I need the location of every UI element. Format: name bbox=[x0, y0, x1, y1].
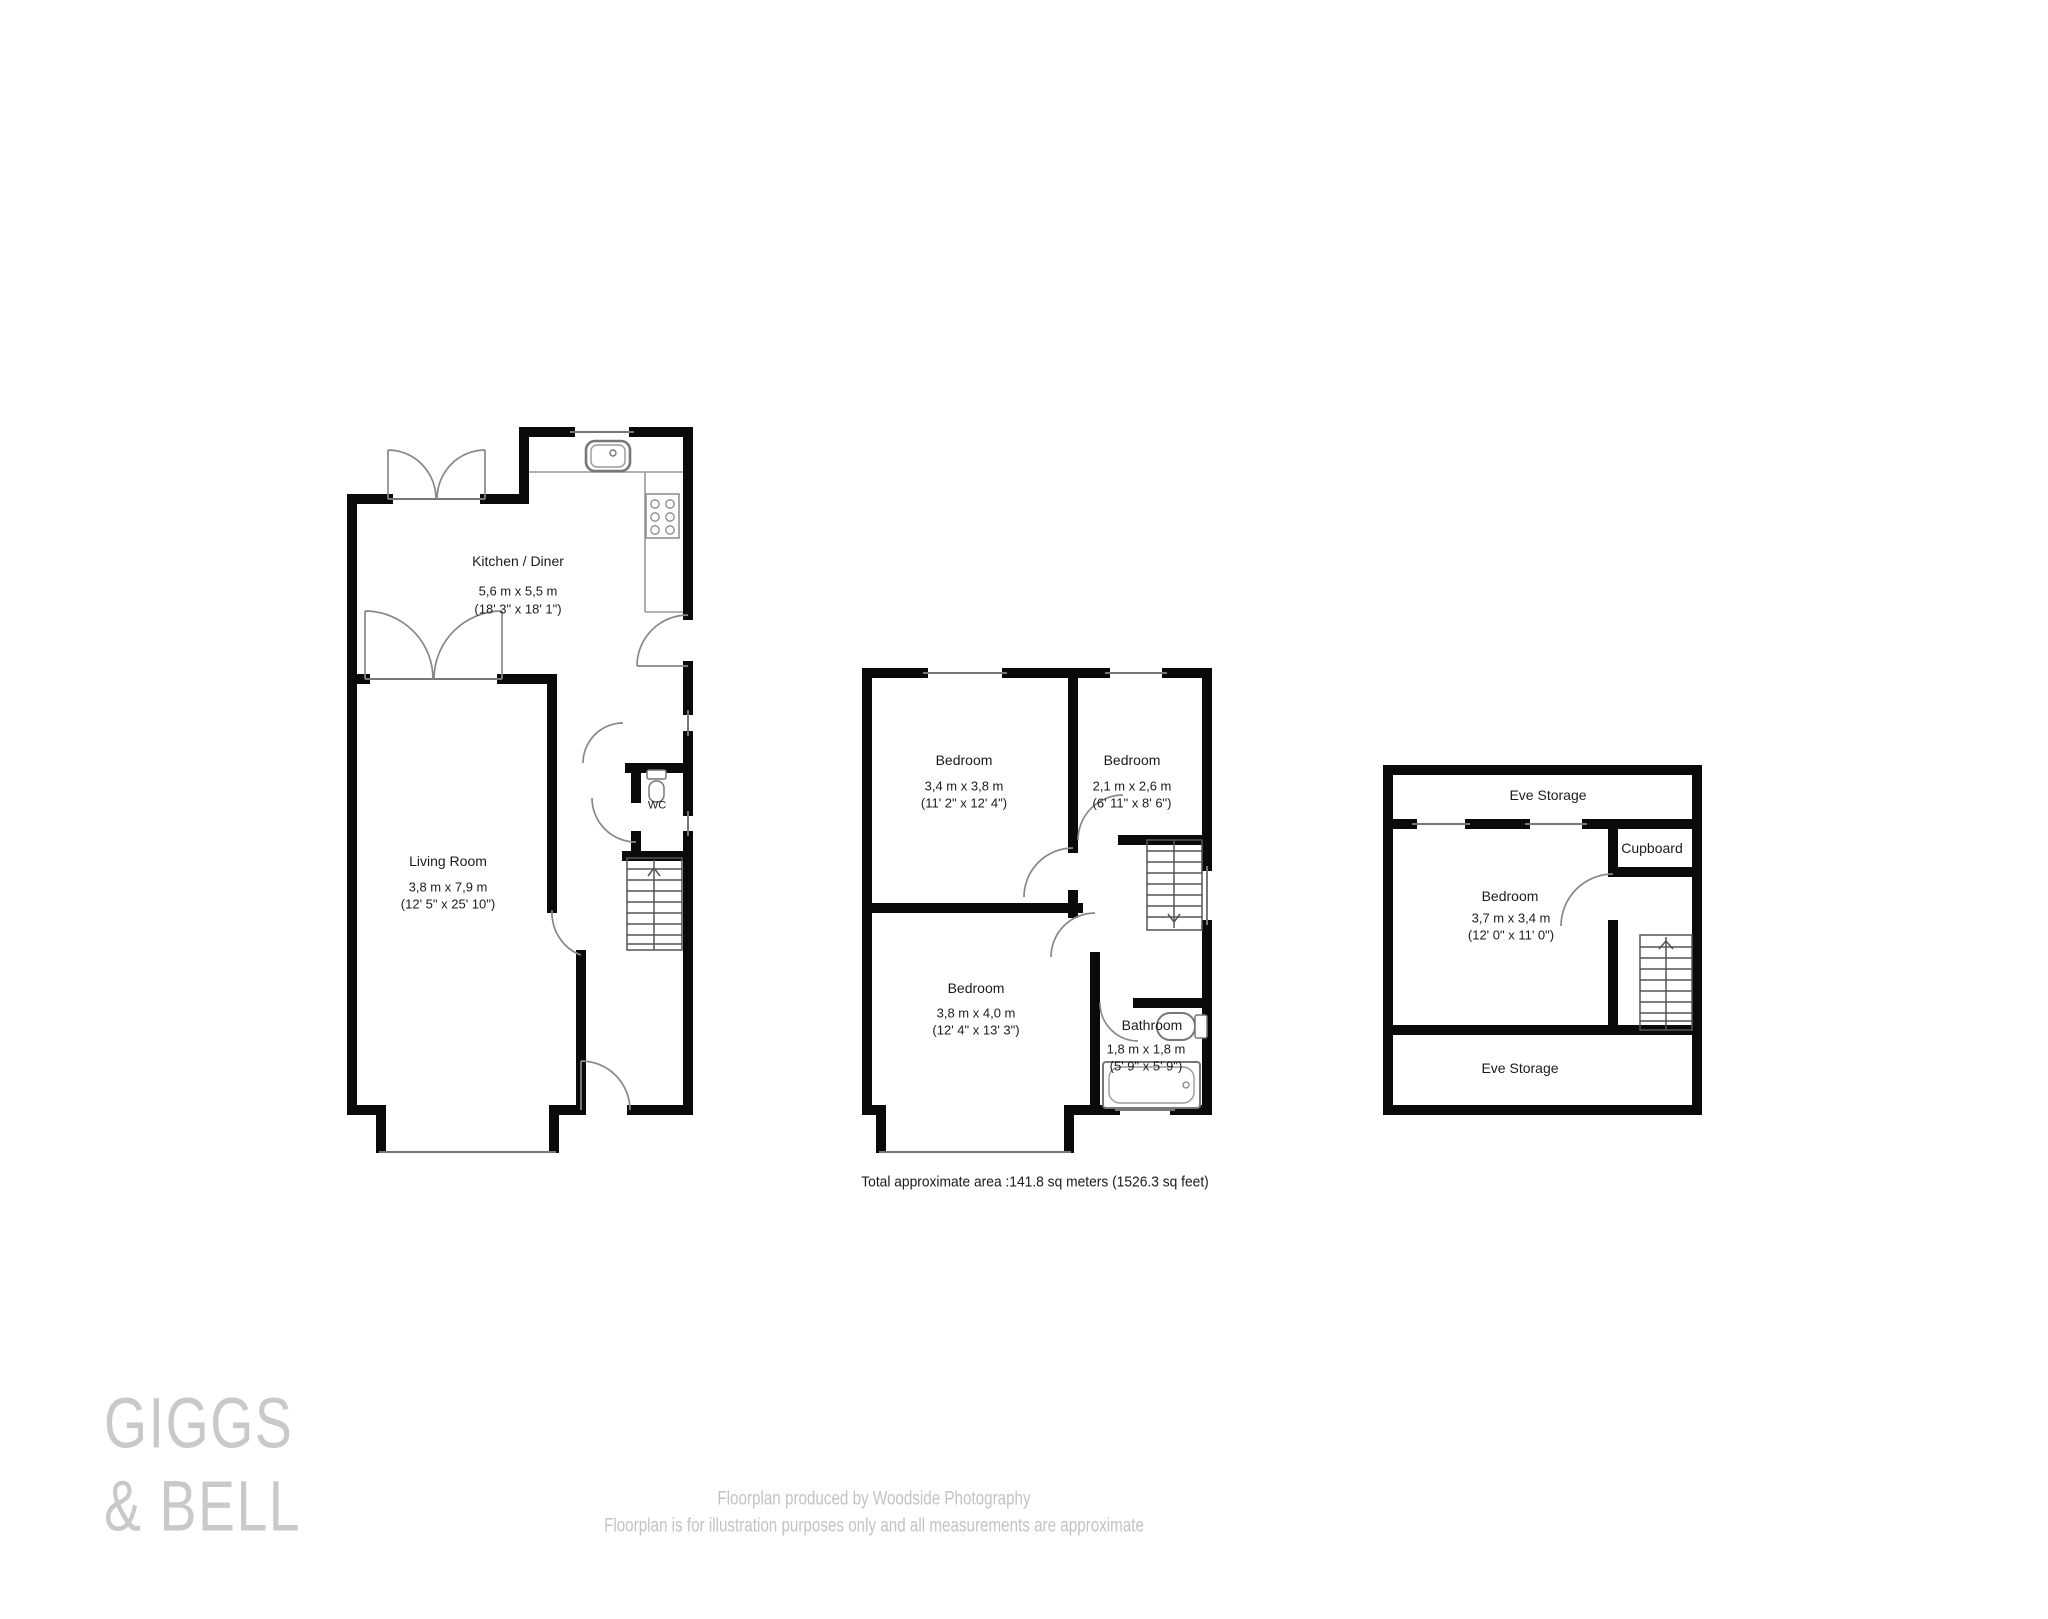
room-dim-bathroom-imperial: (5' 9" x 5' 9") bbox=[1110, 1060, 1183, 1073]
first-door-arcs bbox=[1024, 795, 1138, 1041]
sink-icon bbox=[586, 441, 630, 471]
floorplan-page: Kitchen / Diner 5,6 m x 5,5 m (18' 3" x … bbox=[0, 0, 2048, 1619]
room-label-cupboard: Cupboard bbox=[1621, 841, 1683, 855]
ground-floor-plan bbox=[352, 432, 688, 1152]
room-label-bedroom1: Bedroom bbox=[936, 753, 993, 767]
room-dim-bedroom-second-metric: 3,7 m x 3,4 m bbox=[1472, 912, 1551, 925]
room-label-eve-storage-top: Eve Storage bbox=[1509, 788, 1586, 802]
room-dim-bedroom1-metric: 3,4 m x 3,8 m bbox=[925, 780, 1004, 793]
stairs-icon-second bbox=[1640, 935, 1692, 1030]
agency-logo-line2: & BELL bbox=[104, 1472, 301, 1543]
room-dim-bedroom2-metric: 2,1 m x 2,6 m bbox=[1093, 780, 1172, 793]
hob-icon bbox=[646, 494, 679, 538]
room-label-living-room: Living Room bbox=[409, 854, 487, 868]
room-dim-bedroom2-imperial: (6' 11" x 8' 6") bbox=[1093, 797, 1172, 810]
room-dim-kitchen-imperial: (18' 3" x 18' 1") bbox=[474, 603, 561, 616]
room-label-bedroom3: Bedroom bbox=[948, 981, 1005, 995]
room-dim-kitchen-metric: 5,6 m x 5,5 m bbox=[479, 585, 558, 598]
footer-disclaimer-line: Floorplan is for illustration purposes o… bbox=[604, 1517, 1144, 1536]
first-floor-plan bbox=[867, 673, 1207, 1152]
ground-walls bbox=[352, 432, 688, 1148]
room-dim-bedroom3-metric: 3,8 m x 4,0 m bbox=[937, 1007, 1016, 1020]
agency-logo-line1: GIGGS bbox=[104, 1389, 293, 1460]
room-label-bedroom2: Bedroom bbox=[1104, 753, 1161, 767]
floorplan-drawing bbox=[0, 0, 2048, 1619]
room-label-bedroom-second: Bedroom bbox=[1482, 889, 1539, 903]
room-dim-bedroom1-imperial: (11' 2" x 12' 4") bbox=[921, 797, 1007, 810]
room-label-kitchen: Kitchen / Diner bbox=[472, 554, 564, 568]
room-dim-bedroom-second-imperial: (12' 0" x 11' 0") bbox=[1468, 929, 1554, 942]
total-area-text: Total approximate area :141.8 sq meters … bbox=[861, 1175, 1209, 1190]
room-dim-living-imperial: (12' 5" x 25' 10") bbox=[401, 898, 495, 911]
room-dim-bathroom-metric: 1,8 m x 1,8 m bbox=[1107, 1043, 1186, 1056]
stairs-icon-first bbox=[1147, 840, 1202, 930]
second-door-arc bbox=[1561, 874, 1613, 926]
room-label-eve-storage-bottom: Eve Storage bbox=[1481, 1061, 1558, 1075]
room-label-bathroom: Bathroom bbox=[1122, 1018, 1183, 1032]
stairs-icon-ground bbox=[627, 858, 682, 950]
room-dim-bedroom3-imperial: (12' 4" x 13' 3") bbox=[932, 1024, 1019, 1037]
footer-credit-line: Floorplan produced by Woodside Photograp… bbox=[717, 1490, 1030, 1509]
room-dim-living-metric: 3,8 m x 7,9 m bbox=[409, 881, 488, 894]
room-label-wc: WC bbox=[648, 801, 666, 812]
toilet-icon bbox=[647, 770, 666, 802]
